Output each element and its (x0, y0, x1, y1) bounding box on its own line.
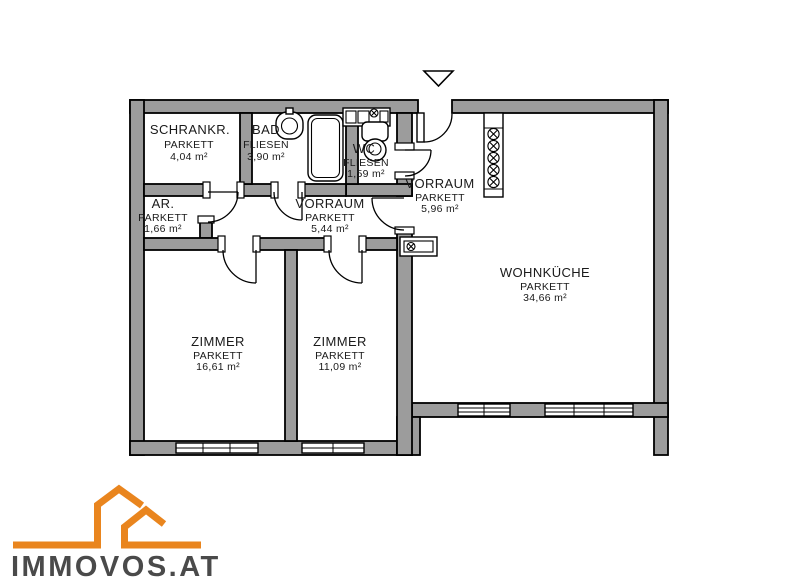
room-vorraum1-area: 5,96 m² (421, 203, 459, 215)
vorraum-door (372, 198, 404, 230)
wall-segment (300, 184, 346, 196)
zimmer2-door (329, 250, 362, 283)
entrance-door-leaf (417, 113, 424, 142)
room-schrankraum-area: 4,04 m² (170, 151, 208, 163)
floor-plan: SCHRANKR. PARKETT 4,04 m² BAD FLIESEN 3,… (0, 0, 800, 581)
room-bad-area: 3,90 m² (247, 151, 285, 163)
room-bad-floor: FLIESEN (243, 139, 289, 151)
wall-segment (346, 184, 412, 196)
entrance-door-arc (424, 114, 452, 142)
wall-segment (144, 238, 222, 250)
wall-segment (654, 100, 668, 455)
entrance-arrow-icon (424, 71, 453, 86)
room-vorraum2-area: 5,44 m² (311, 223, 349, 235)
door-jamb (395, 227, 414, 234)
zimmer1-door (223, 250, 256, 283)
door-jamb (253, 236, 260, 252)
room-schrankraum-floor: PARKETT (164, 139, 214, 151)
wall-segment (130, 100, 144, 455)
toilet-tank-icon (362, 122, 388, 141)
room-vorraum1-name: VORRAUM (405, 176, 474, 191)
washbasin-tap (286, 108, 293, 114)
radiator-box-icon (400, 237, 437, 256)
immovos-logo: IMMOVOS.AT (11, 489, 221, 581)
wall-segment (256, 238, 328, 250)
floorplan-page: SCHRANKR. PARKETT 4,04 m² BAD FLIESEN 3,… (0, 0, 800, 581)
room-wc-area: 1,59 m² (347, 168, 385, 180)
room-zimmer1-name: ZIMMER (191, 334, 245, 349)
wall-segment (362, 238, 397, 250)
room-schrankraum-name: SCHRANKR. (150, 122, 230, 137)
room-ar-area: 1,66 m² (144, 223, 182, 235)
logo-text: IMMOVOS.AT (11, 551, 221, 581)
wall-segment (130, 441, 412, 455)
door-jamb (203, 182, 210, 198)
door-jamb (359, 236, 366, 252)
room-zimmer2-name: ZIMMER (313, 334, 367, 349)
window (545, 404, 633, 416)
wall-segment (240, 184, 274, 196)
room-bad-name: BAD (252, 122, 280, 137)
wall-segment (144, 184, 206, 196)
room-zimmer1-area: 16,61 m² (196, 361, 240, 373)
wall-segment (200, 222, 212, 238)
door-jamb (218, 236, 225, 252)
door-jamb (324, 236, 331, 252)
room-ar-name: AR. (152, 196, 175, 211)
room-wohnkueche-area: 34,66 m² (523, 292, 567, 304)
bathtub-icon (308, 115, 343, 181)
radiator-icon (484, 113, 503, 197)
wall-segment (452, 100, 668, 113)
room-wohnkueche-name: WOHNKÜCHE (500, 265, 590, 280)
door-jamb (395, 143, 414, 150)
room-zimmer2-area: 11,09 m² (318, 361, 361, 373)
washbasin-icon (276, 112, 303, 139)
room-vorraum2-name: VORRAUM (295, 196, 364, 211)
room-wc-name: WC (353, 141, 375, 156)
wall-segment (285, 250, 297, 441)
wall-segment (397, 232, 412, 455)
